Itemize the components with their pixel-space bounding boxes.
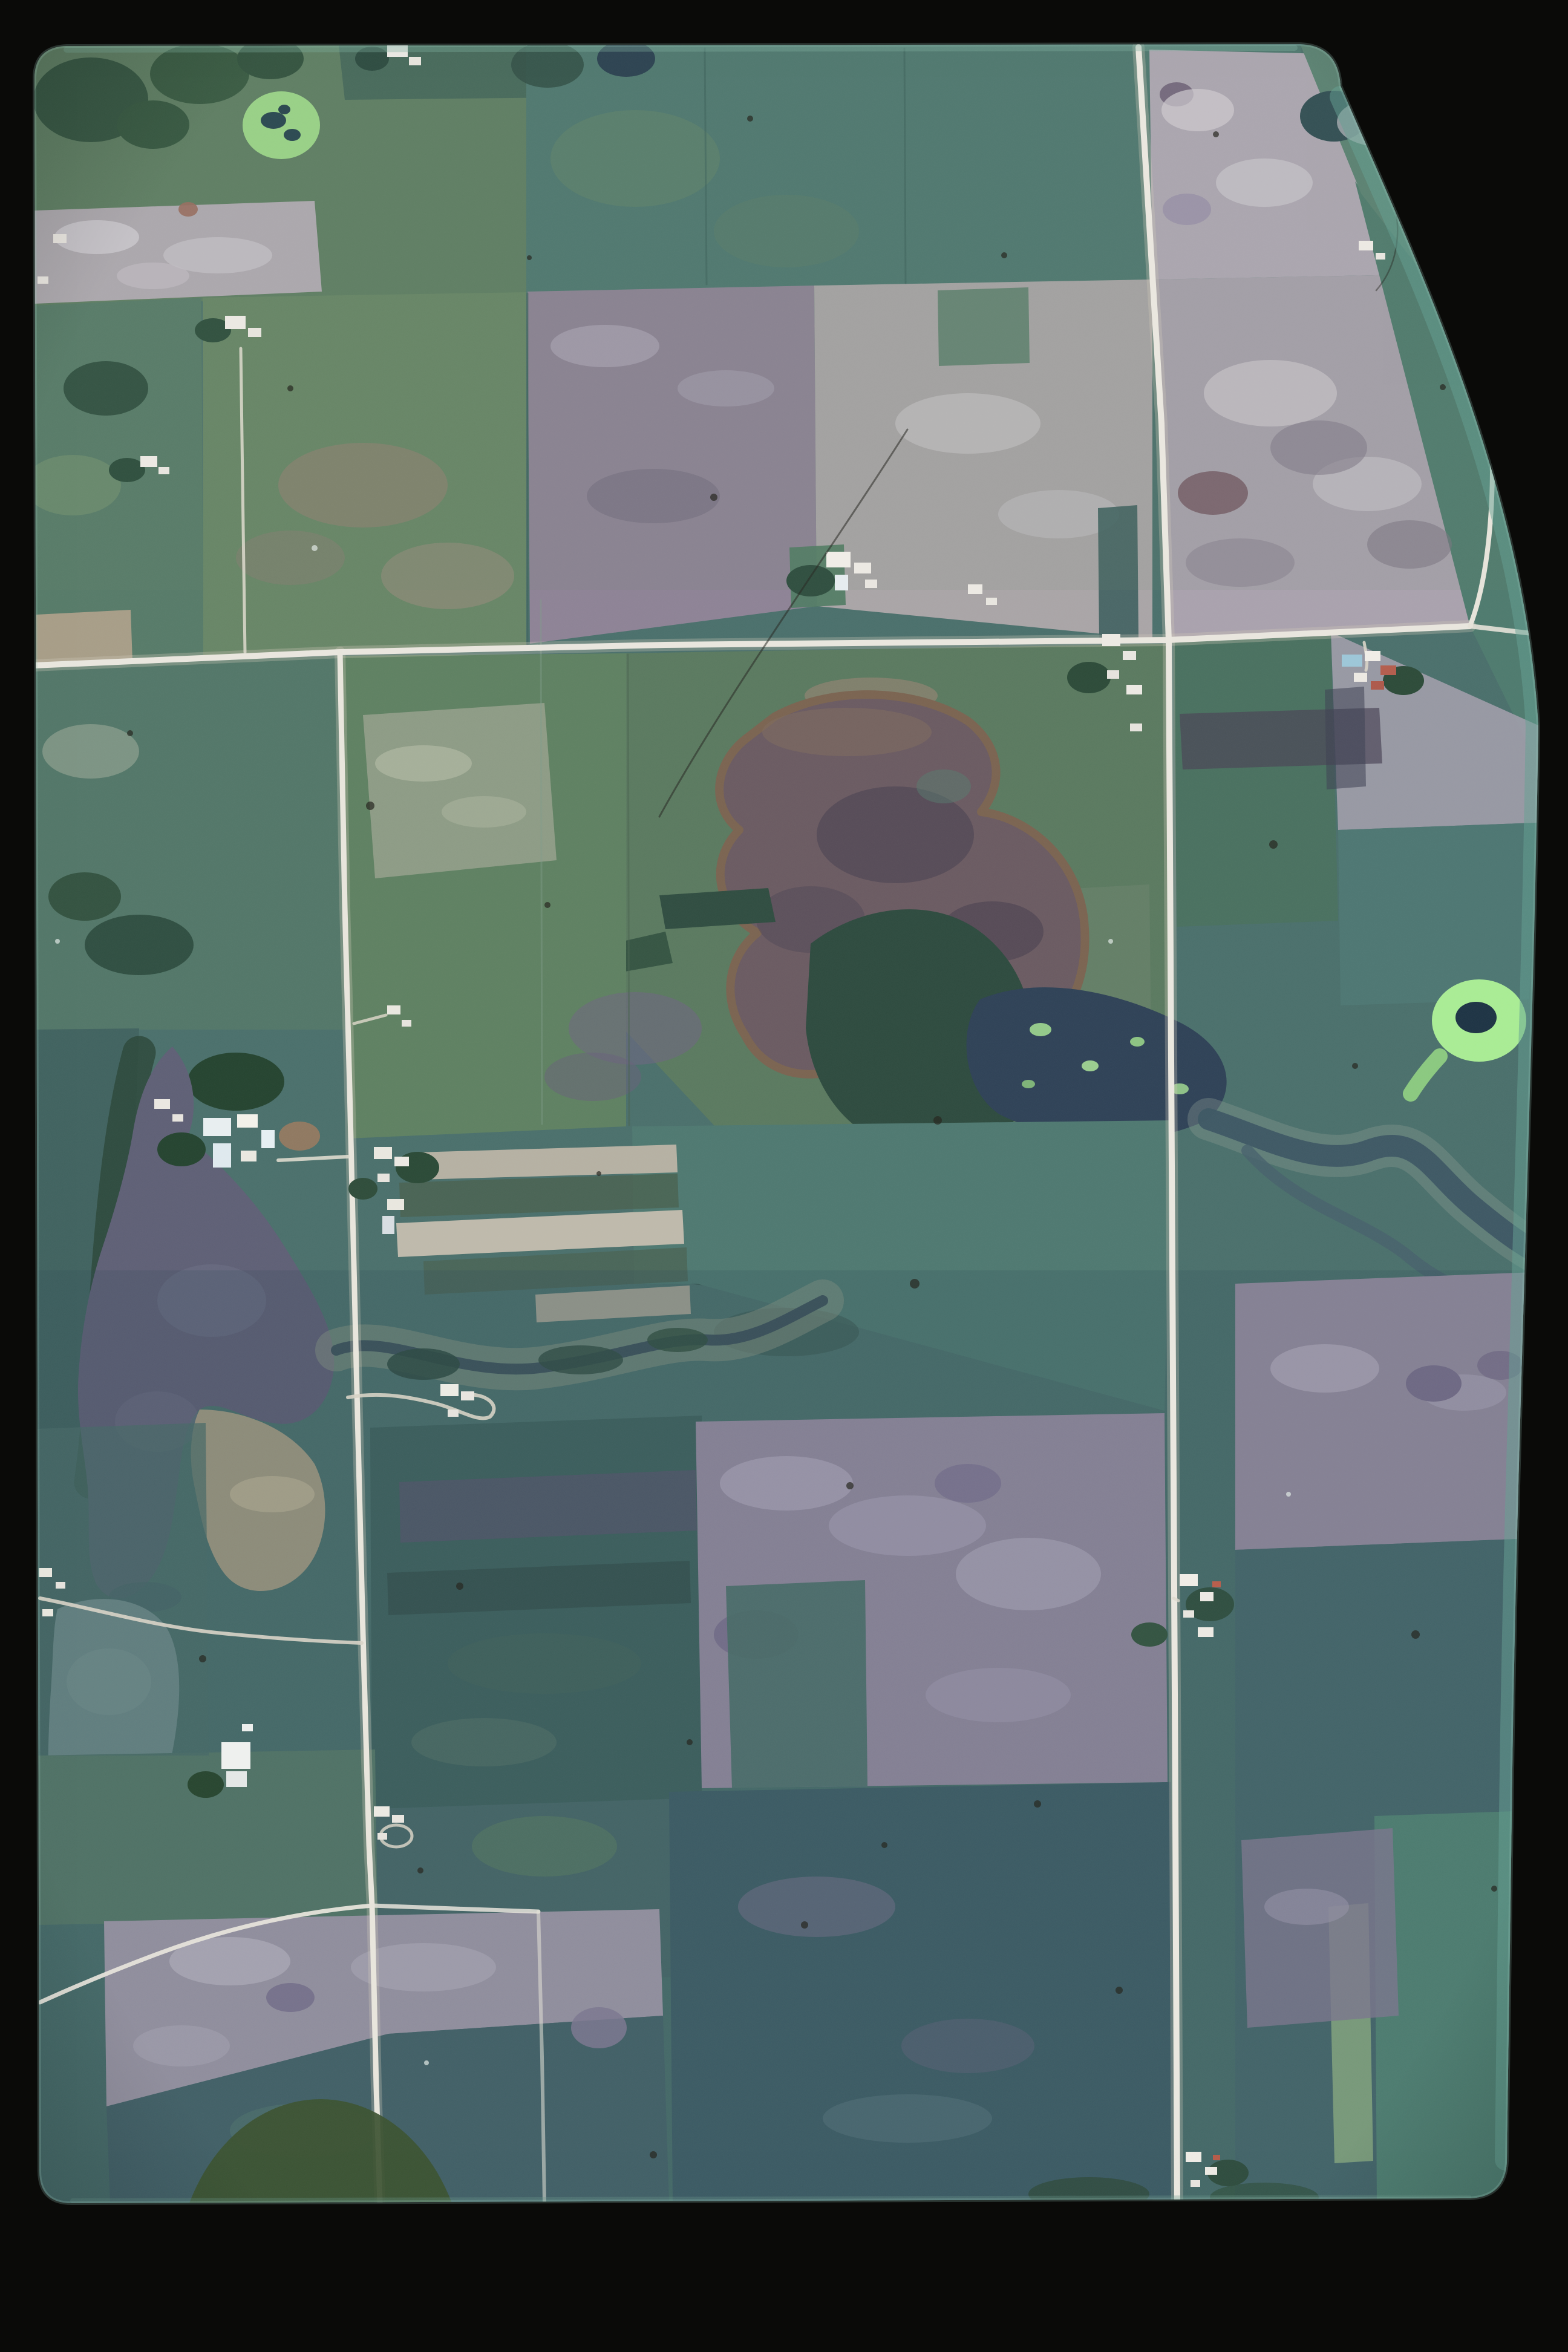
vignette-overlay <box>0 0 1568 2352</box>
photo-content <box>0 0 1568 2352</box>
aerial-photo-slide-scan <box>0 0 1568 2352</box>
